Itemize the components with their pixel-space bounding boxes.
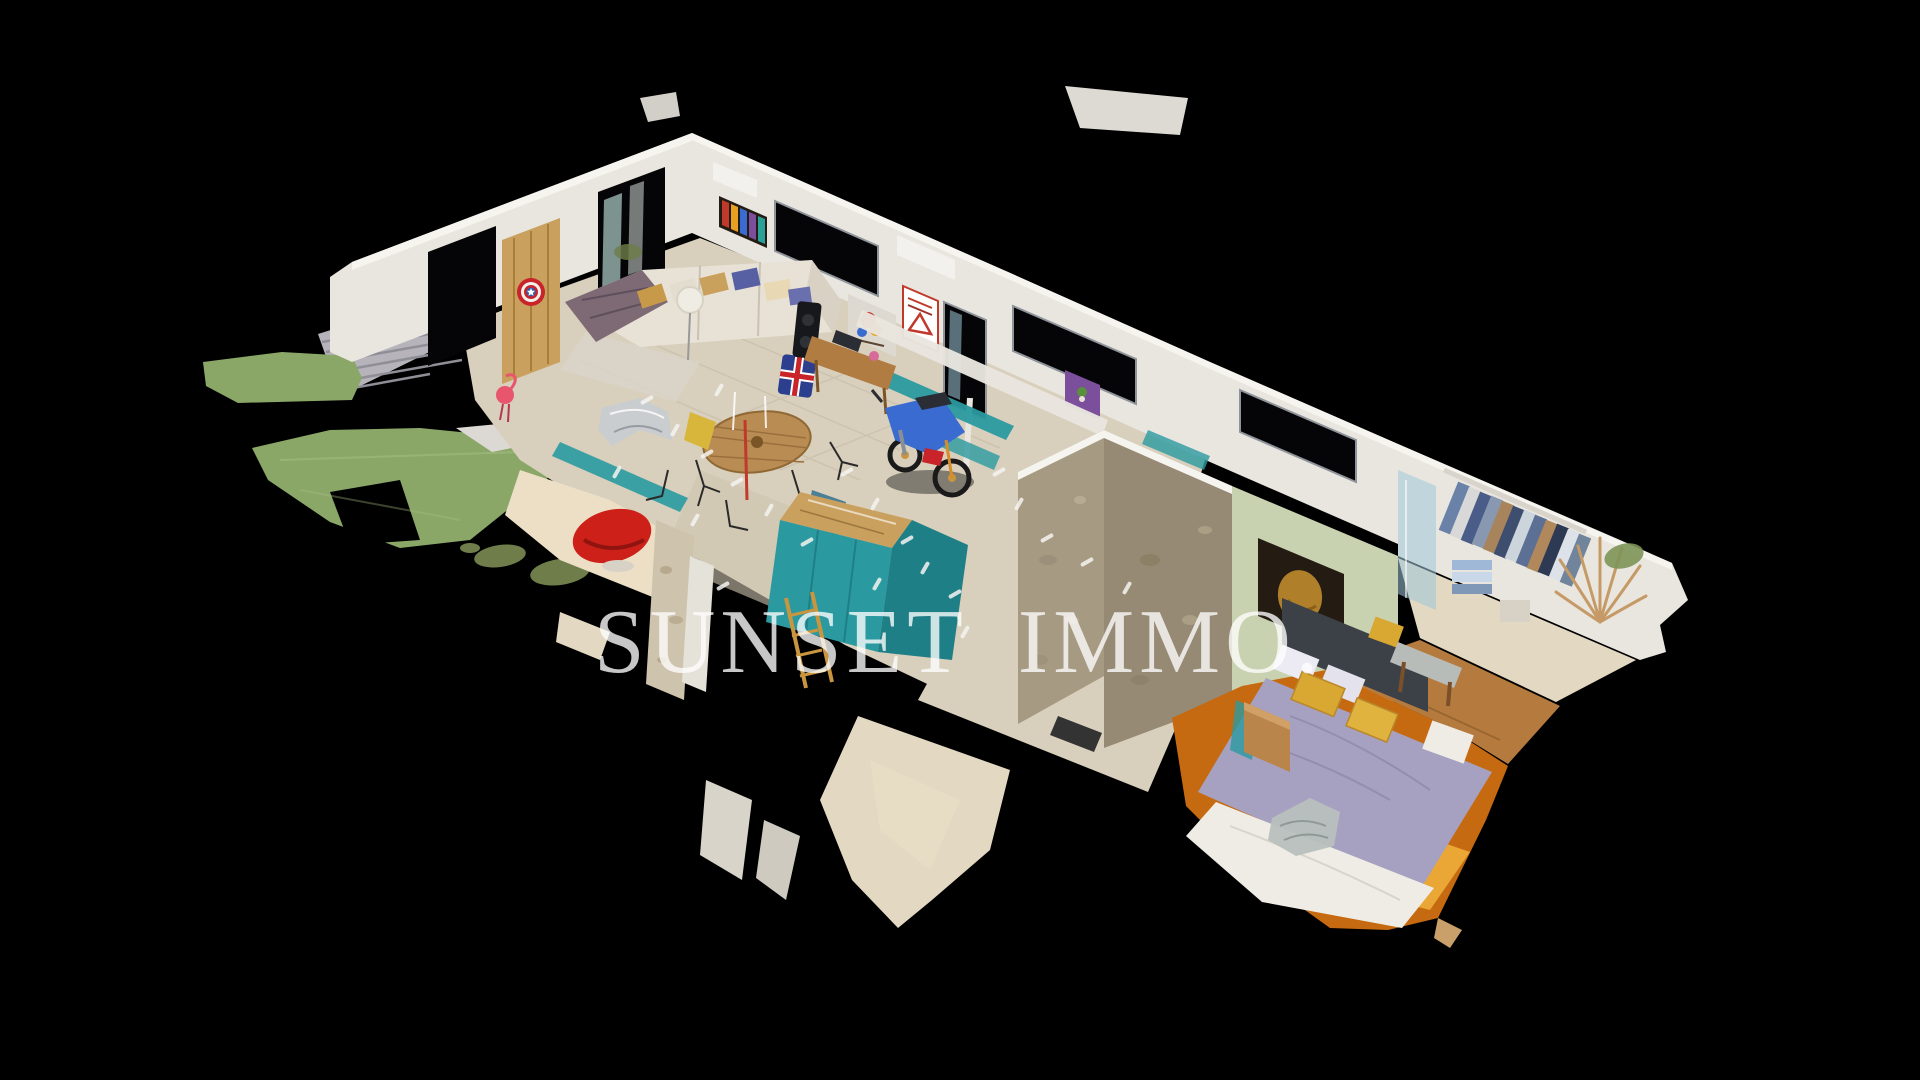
drum-lampshade (677, 287, 703, 313)
reflected-leaf (614, 244, 642, 260)
bush-small (460, 543, 480, 553)
red-pole (745, 420, 747, 500)
captain-america-shield-icon (517, 278, 545, 306)
spool-hole (751, 436, 763, 448)
glass-partition (1398, 470, 1436, 610)
stone-wall-left (1018, 430, 1104, 724)
captain-america-door (502, 218, 560, 384)
dollhouse-viewport[interactable]: SUNSET IMMO. (0, 0, 1920, 1080)
dollhouse-3d-render (0, 0, 1920, 1080)
grass-patch-upper (203, 352, 362, 403)
